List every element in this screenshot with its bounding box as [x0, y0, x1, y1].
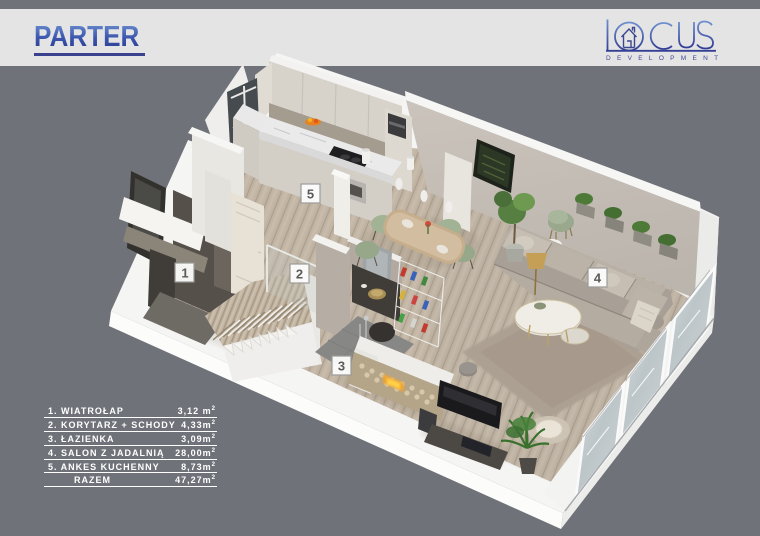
svg-text:4: 4 — [594, 271, 602, 286]
svg-text:1: 1 — [181, 266, 188, 281]
svg-text:3: 3 — [338, 359, 345, 374]
svg-text:5: 5 — [307, 187, 314, 202]
svg-text:2: 2 — [296, 267, 303, 282]
svg-text:DEVELOPMENT: DEVELOPMENT — [606, 55, 724, 62]
